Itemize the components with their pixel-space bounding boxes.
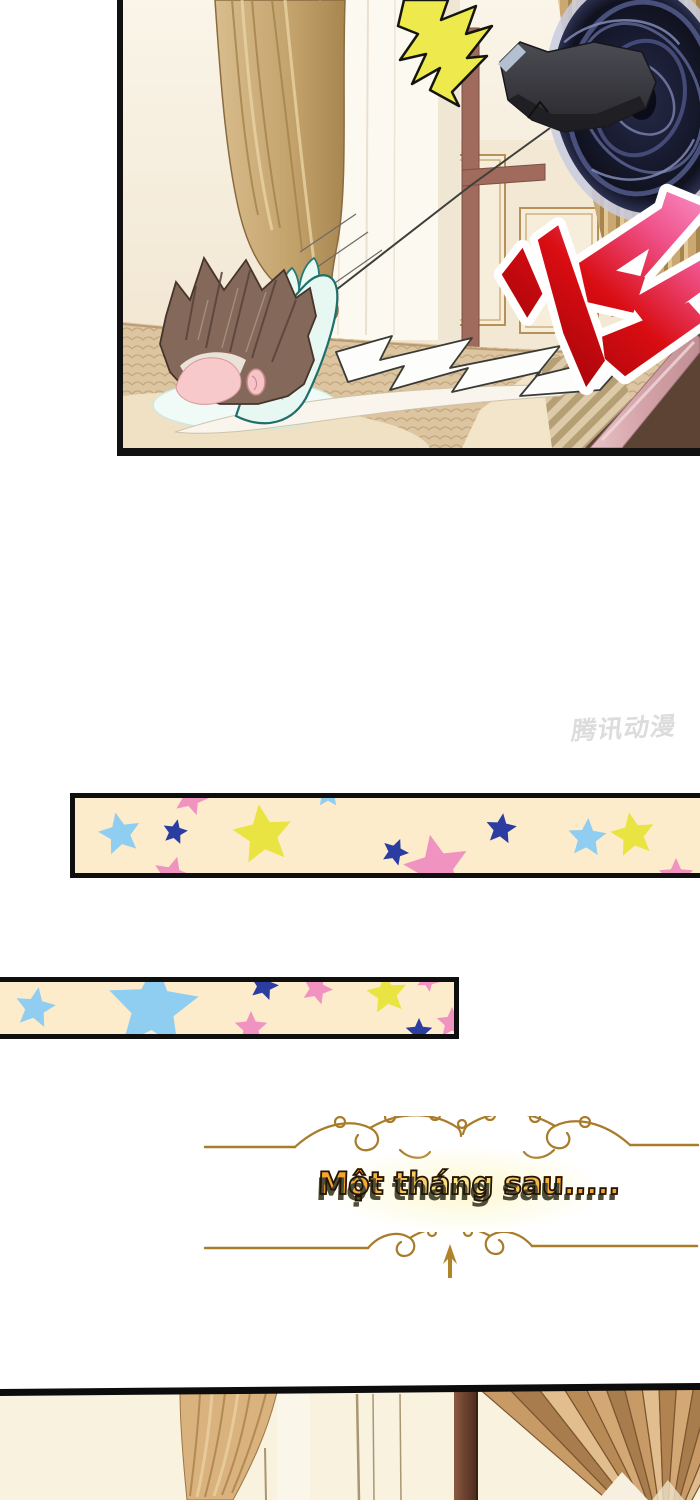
star-pink [417,982,440,992]
star-yellow [610,812,653,855]
manga-panel-top: 嗖 [0,0,700,460]
star-light_blue [98,813,139,855]
star-pink [235,1011,267,1034]
star-pattern [75,798,700,873]
manga-panel-bottom [0,1380,700,1500]
panel-border-left [117,0,123,456]
panel-border-bottom [117,448,700,456]
star-light_blue [569,818,607,855]
star-light_blue [17,987,56,1027]
star-pink [176,798,209,815]
tencent-comics-watermark: 腾讯动漫 [569,704,700,751]
star-pink [155,857,192,873]
star-yellow [233,804,291,862]
star-pattern [0,982,454,1034]
star-pink [659,858,693,873]
star-yellow [366,982,406,1013]
star-dark_blue [487,813,517,843]
caption-one-month-later: Một tháng sau..... [317,1166,618,1202]
arrow-ornament [443,1244,457,1278]
star-banner-top [70,793,700,878]
star-dark_blue [251,982,279,1000]
divider-ornament-bottom [200,1232,700,1290]
star-light_blue [315,798,342,805]
panel-bottom-scene [0,1380,700,1500]
star-pink [437,1007,454,1034]
star-light_blue [109,982,198,1034]
star-dark_blue [164,819,188,844]
star-dark_blue [406,1018,433,1034]
panel-top-scene [0,0,700,460]
star-pink [304,982,333,1004]
star-banner-bottom [0,977,459,1039]
star-dark_blue [383,839,409,866]
star-pink [403,835,466,873]
wood-post [454,1388,477,1500]
